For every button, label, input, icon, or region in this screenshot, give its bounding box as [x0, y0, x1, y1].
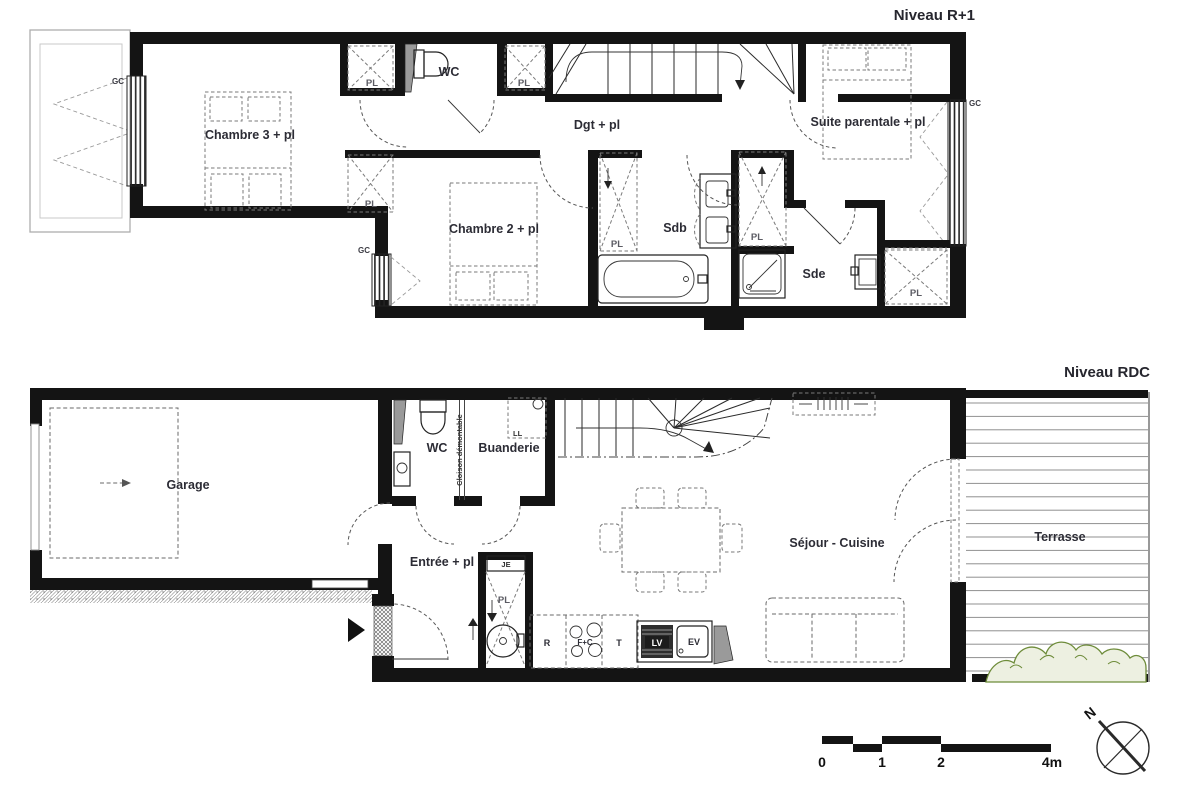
balcony [30, 30, 130, 232]
sofa [766, 598, 904, 662]
bathtub [598, 255, 708, 303]
staircase-rdc [558, 398, 772, 457]
room-label-sde: Sde [803, 267, 826, 281]
fridge-label: R [544, 638, 551, 648]
window-chambre2 [372, 254, 420, 306]
room-label-sdb: Sdb [663, 221, 687, 235]
entrance-arrow [348, 618, 365, 642]
floor-plan-sheet: Niveau R+1 Niveau RDC [0, 0, 1181, 800]
scale-tick-1: 1 [878, 754, 886, 770]
vanity-sdb [695, 174, 737, 248]
garage-window [31, 424, 39, 550]
room-label-wc-rdc: WC [427, 441, 448, 455]
room-label-chambre3: Chambre 3 + pl [205, 128, 295, 142]
room-label-garage: Garage [166, 478, 209, 492]
scale-bar: 0 1 2 4m [818, 736, 1062, 770]
cupboard-door [714, 626, 733, 664]
toilet-rdc [420, 400, 446, 434]
title-niveau-rdc: Niveau RDC [1064, 364, 1150, 381]
compass: N [1081, 704, 1149, 774]
scale-tick-0: 0 [818, 754, 826, 770]
cooktop-label: F+C [577, 638, 593, 647]
kitchen-counter [530, 615, 733, 668]
pl-label-3: PL [365, 199, 377, 210]
room-label-sejour: Séjour - Cuisine [789, 536, 884, 550]
gc-label-1: GC [112, 77, 124, 86]
stairs-arrow-rdc [703, 441, 714, 453]
dining-table [600, 488, 742, 592]
garage-opening [312, 580, 368, 588]
gravel-strip [30, 590, 372, 603]
north-pointer [1099, 721, 1145, 771]
floor-rdc: Garage WC Buanderie Cloison démontable E… [30, 388, 1150, 682]
window-suite [920, 100, 966, 246]
room-label-dgt: Dgt + pl [574, 118, 620, 132]
gc-label-3: GC [358, 246, 370, 255]
washbasin-wc-rdc [394, 452, 410, 486]
pl-label-4: PL [611, 239, 623, 250]
shower [739, 250, 785, 298]
floor-r1: Chambre 3 + pl WC Dgt + pl Suite parenta… [30, 30, 981, 330]
bed-chambre2 [450, 183, 537, 305]
washbasin-sde [851, 255, 880, 289]
north-label: N [1081, 704, 1099, 723]
pl-label-5: PL [751, 232, 763, 243]
gc-label-2: GC [969, 99, 981, 108]
closet-pl-entree [468, 556, 525, 666]
stairs-arrow-r1 [735, 80, 745, 90]
room-label-terrasse: Terrasse [1034, 530, 1085, 544]
room-label-suite: Suite parentale + pl [811, 115, 926, 129]
entry-threshold [374, 606, 392, 656]
title-niveau-r1: Niveau R+1 [894, 7, 975, 24]
label-cloison-demontable: Cloison démontable [455, 414, 464, 486]
room-label-chambre2: Chambre 2 + pl [449, 222, 539, 236]
ll-label: LL [513, 429, 523, 438]
room-label-entree: Entrée + pl [410, 555, 474, 569]
staircase-r1 [549, 44, 794, 94]
plan-drawing: Niveau R+1 Niveau RDC [0, 0, 1181, 800]
walls-r1-interior [340, 44, 950, 318]
scale-tick-2: 2 [937, 754, 945, 770]
garage-parking-space [50, 408, 178, 558]
duct [394, 400, 406, 444]
room-label-buanderie: Buanderie [478, 441, 539, 455]
closet-pl-sdb [600, 153, 637, 251]
room-label-wc-r1: WC [439, 65, 460, 79]
pl-label-2: PL [518, 78, 530, 89]
pl-label-1: PL [366, 78, 378, 89]
pl-label-entree: PL [498, 595, 510, 606]
sink-label: EV [688, 637, 700, 647]
je-label: JE [501, 560, 510, 569]
scale-tick-4m: 4m [1042, 754, 1062, 770]
window-chambre3 [127, 76, 146, 186]
walls-rdc-interior [392, 392, 555, 668]
dishwasher-label: LV [652, 638, 663, 648]
worktop-label: T [616, 638, 622, 648]
pl-label-6: PL [910, 288, 922, 299]
bed-chambre3 [205, 92, 291, 210]
wc-door-leaf [405, 44, 417, 92]
